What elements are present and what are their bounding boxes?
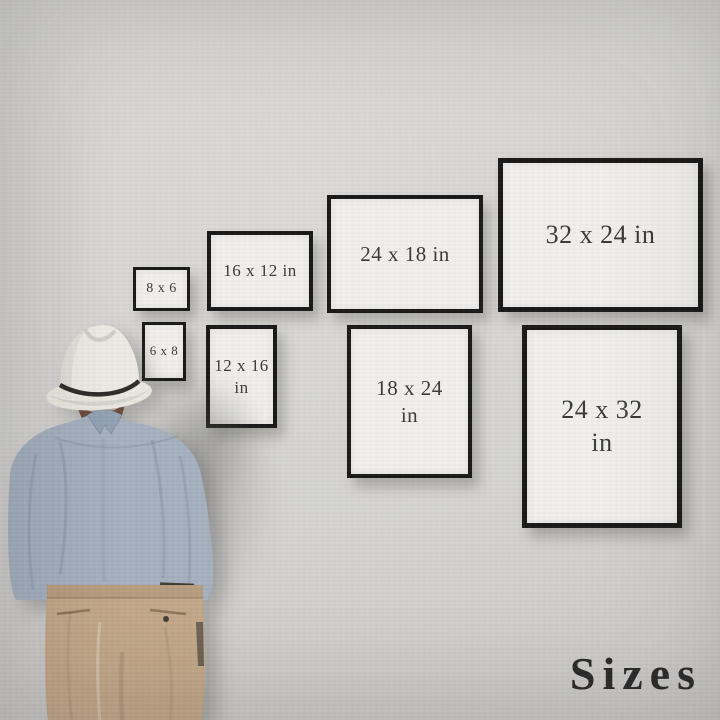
frame-size-label: 18 x 24in — [376, 375, 443, 428]
frame-size-label: 32 x 24 in — [546, 219, 656, 252]
frame-size-label: 24 x 18 in — [360, 241, 450, 267]
shirt-back-pleat — [103, 438, 104, 582]
leg-crease — [121, 652, 122, 720]
frame-18x24-portrait: 18 x 24in — [347, 325, 472, 478]
khaki-pants — [45, 582, 205, 720]
man-parts — [8, 325, 213, 720]
frame-32x24-landscape: 32 x 24 in — [498, 158, 703, 312]
frame-size-label: 24 x 32in — [561, 394, 643, 459]
frame-24x18-landscape: 24 x 18 in — [327, 195, 483, 313]
sizes-title: Sizes — [570, 647, 702, 700]
shirt — [8, 412, 213, 600]
fedora-hat — [45, 325, 153, 414]
frame-8x6-landscape: 8 x 6 — [133, 267, 190, 311]
pocket-button — [163, 616, 169, 622]
man-figure — [0, 322, 232, 720]
frame-size-label: 16 x 12 in — [223, 260, 296, 281]
frame-size-label: 8 x 6 — [146, 280, 177, 298]
waistband — [47, 585, 203, 598]
frame-16x12-landscape: 16 x 12 in — [207, 231, 313, 311]
gallery-wall-scene: 8 x 6 16 x 12 in 24 x 18 in 32 x 24 in 6… — [0, 0, 720, 720]
frame-24x32-portrait: 24 x 32in — [522, 325, 682, 528]
